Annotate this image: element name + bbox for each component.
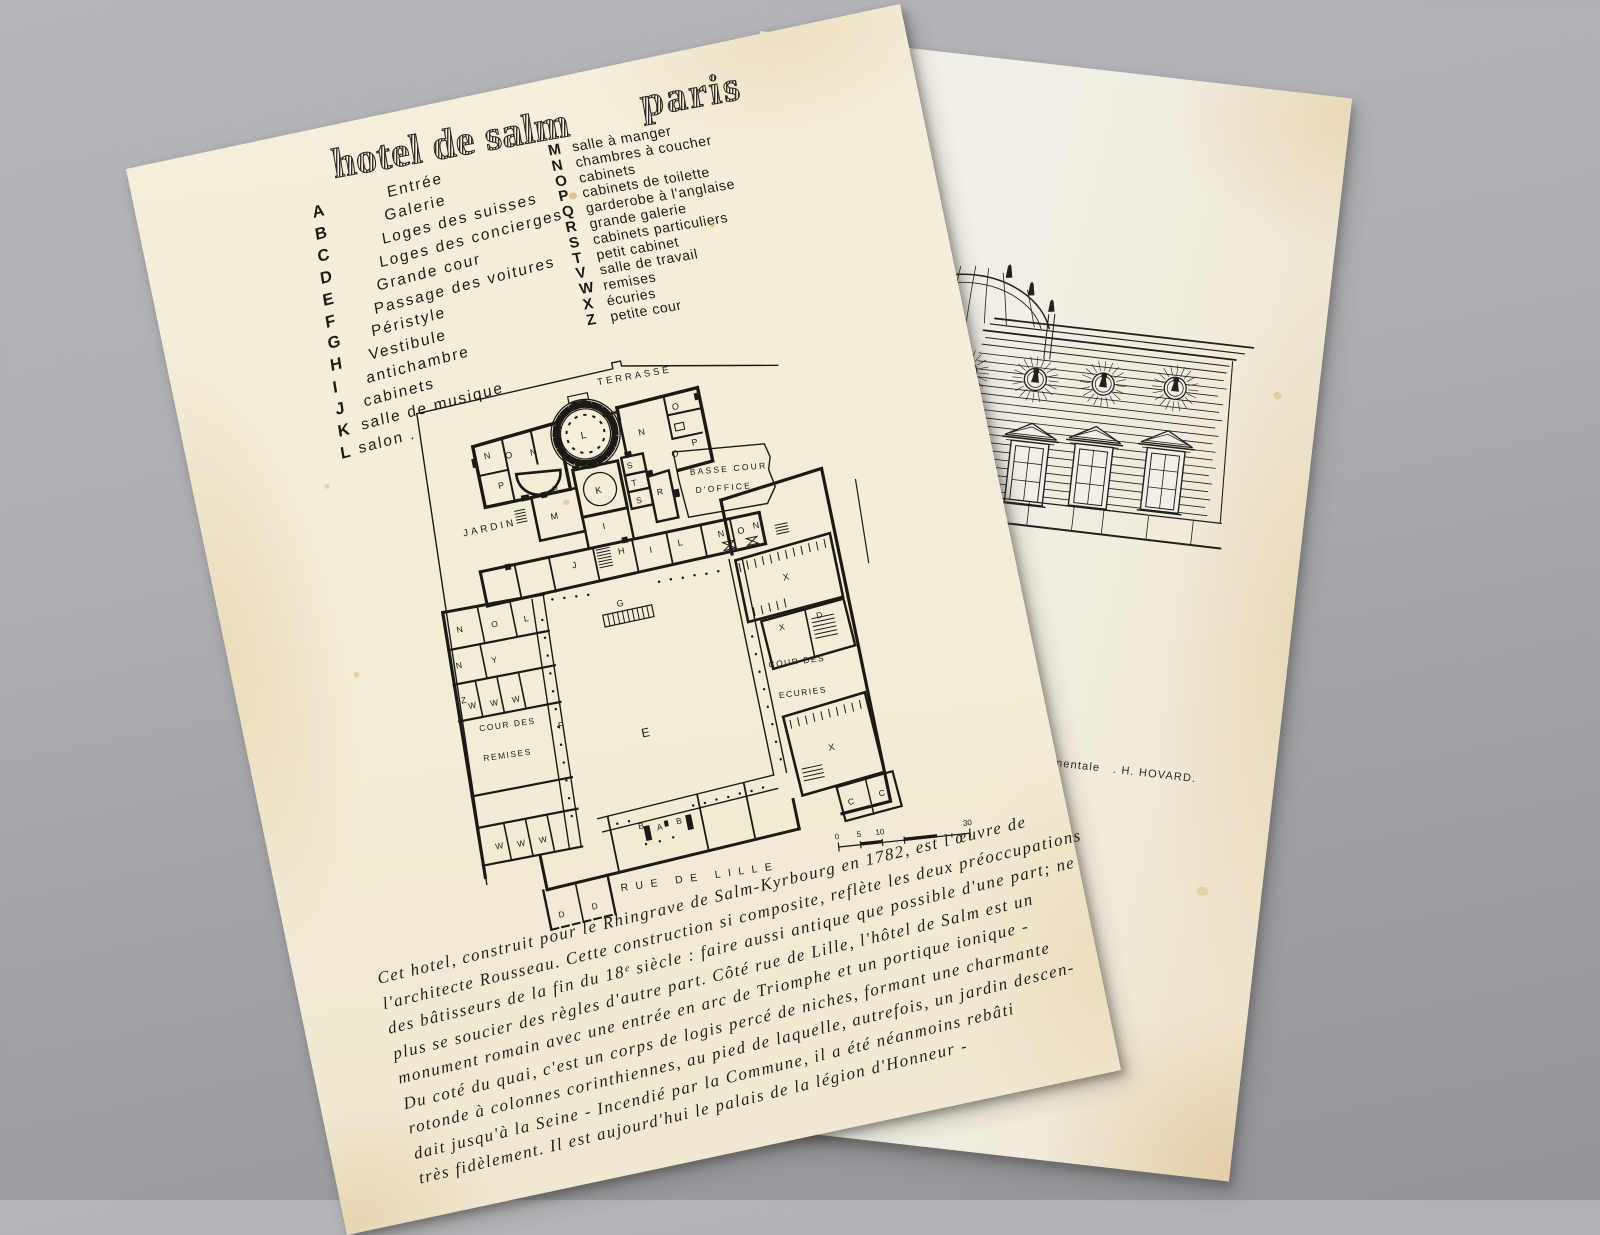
svg-text:W: W xyxy=(467,700,477,711)
svg-text:N: N xyxy=(637,427,645,438)
svg-text:N: N xyxy=(717,528,725,539)
svg-text:I: I xyxy=(648,545,652,555)
svg-text:I: I xyxy=(602,521,606,531)
svg-text:M: M xyxy=(550,511,559,522)
svg-text:0: 0 xyxy=(834,832,840,841)
svg-text:TERRASSE: TERRASSE xyxy=(597,364,673,388)
svg-text:Y: Y xyxy=(490,654,498,665)
svg-text:D: D xyxy=(591,901,599,912)
svg-text:H: H xyxy=(617,545,625,556)
svg-text:G: G xyxy=(616,598,625,609)
svg-text:JARDIN: JARDIN xyxy=(462,517,517,539)
svg-text:5: 5 xyxy=(856,830,862,839)
svg-text:W: W xyxy=(516,837,526,848)
svg-text:O: O xyxy=(490,618,499,629)
svg-text:X: X xyxy=(782,571,791,583)
svg-text:COUR DES: COUR DES xyxy=(768,653,826,670)
svg-text:L: L xyxy=(677,537,684,548)
svg-text:K: K xyxy=(594,485,603,497)
svg-text:O: O xyxy=(671,401,680,412)
svg-text:COUR DES: COUR DES xyxy=(479,716,537,734)
svg-text:ECURIES: ECURIES xyxy=(778,684,827,700)
svg-text:R: R xyxy=(656,486,664,497)
svg-text:S: S xyxy=(626,460,634,471)
svg-text:W: W xyxy=(494,840,504,851)
svg-text:O: O xyxy=(504,450,513,461)
svg-text:C: C xyxy=(847,796,855,807)
svg-text:W: W xyxy=(489,697,499,708)
svg-text:X: X xyxy=(778,622,786,633)
svg-text:T: T xyxy=(631,477,638,488)
svg-text:O: O xyxy=(737,525,746,536)
svg-text:C: C xyxy=(878,787,886,798)
svg-text:Z: Z xyxy=(460,695,467,706)
svg-text:REMISES: REMISES xyxy=(483,746,533,763)
svg-text:L: L xyxy=(523,613,530,624)
svg-text:A: A xyxy=(656,821,664,832)
svg-text:B: B xyxy=(675,815,683,826)
svg-text:F: F xyxy=(557,720,565,731)
svg-text:P: P xyxy=(691,437,699,448)
svg-text:N: N xyxy=(455,660,463,671)
svg-text:W: W xyxy=(538,834,548,845)
svg-text:D: D xyxy=(815,610,823,621)
svg-text:N: N xyxy=(456,624,464,635)
svg-text:S: S xyxy=(635,495,643,506)
svg-text:D: D xyxy=(558,909,566,920)
svg-text:X: X xyxy=(827,742,836,754)
svg-text:N: N xyxy=(529,447,537,458)
svg-text:P: P xyxy=(497,480,505,491)
svg-text:E: E xyxy=(640,725,651,740)
svg-text:O: O xyxy=(671,448,680,459)
svg-text:J: J xyxy=(571,560,577,571)
svg-text:10: 10 xyxy=(875,827,885,837)
svg-text:W: W xyxy=(511,693,521,704)
svg-text:N: N xyxy=(752,520,760,531)
svg-text:N: N xyxy=(483,450,491,461)
